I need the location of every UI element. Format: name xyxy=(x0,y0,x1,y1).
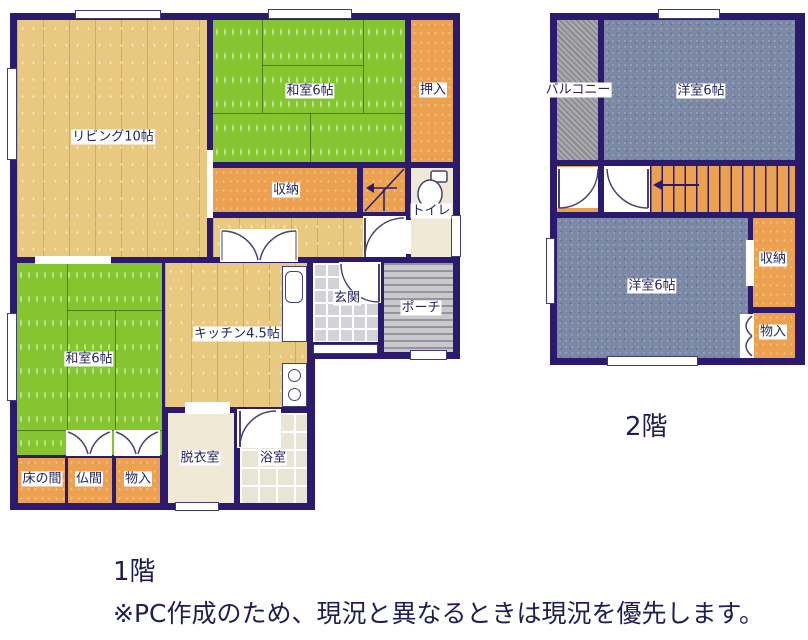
fusuma-door xyxy=(114,430,160,456)
window xyxy=(75,10,161,19)
stairs-2f-arrow xyxy=(651,177,703,193)
door-opening xyxy=(746,240,754,286)
plan-floor1-cutout xyxy=(315,359,460,510)
disclaimer-note: ※PC作成のため、現況と異なるときは現況を優先します。 xyxy=(113,594,764,630)
door-arc-hall-genkan xyxy=(363,216,406,258)
double-door-hall-kitchen xyxy=(220,229,298,262)
tatami-line xyxy=(67,263,68,430)
window xyxy=(658,9,720,19)
tatami-line xyxy=(310,113,311,162)
window xyxy=(7,68,17,160)
label-butsuma: 仏間 xyxy=(75,472,103,487)
door-arc-landing-right xyxy=(604,167,650,209)
kitchen-sink xyxy=(285,271,303,303)
tatami-line xyxy=(262,65,363,66)
label-kitchen: キッチン4.5帖 xyxy=(193,327,281,342)
label-youshitsu-top: 洋室6帖 xyxy=(676,84,725,99)
tatami-line xyxy=(213,113,405,114)
stove-burner xyxy=(288,369,301,382)
tatami-line xyxy=(363,20,364,113)
door-arc-bathroom xyxy=(237,409,281,449)
fusuma-door xyxy=(66,430,112,456)
tatami-line xyxy=(115,310,116,430)
door-opening xyxy=(35,256,111,264)
window xyxy=(607,356,698,366)
window xyxy=(410,350,447,360)
label-shuunou-2f: 収納 xyxy=(759,252,787,267)
label-washitsu-bottom: 和室6帖 xyxy=(64,352,113,367)
label-youshitsu-bottom: 洋室6帖 xyxy=(627,279,676,294)
window xyxy=(7,313,17,401)
label-balcony: バルコニー xyxy=(545,83,612,98)
label-genkan: 玄関 xyxy=(333,291,361,306)
door-opening xyxy=(207,150,213,218)
door-opening xyxy=(185,402,230,414)
closet-door-2f xyxy=(740,314,754,358)
label-oshiire: 押入 xyxy=(419,83,447,98)
label-datsuiishitsu: 脱衣室 xyxy=(179,451,220,466)
stove-burner xyxy=(288,388,301,401)
label-yokushitsu: 浴室 xyxy=(259,451,287,466)
label-tokonoma: 床の間 xyxy=(21,472,62,487)
floorplan-canvas: リビング10帖 和室6帖 押入 収納 トイレ 玄関 ポーチ キッチン4.5帖 和… xyxy=(0,0,808,640)
label-living: リビング10帖 xyxy=(71,130,155,145)
stairs-1f-symbol xyxy=(363,167,406,213)
label-toilet: トイレ xyxy=(410,204,451,219)
door-arc-landing-left xyxy=(557,167,599,209)
tatami-line xyxy=(262,20,263,113)
floor1-title: 1階 xyxy=(113,551,156,588)
label-shuunou-1f: 収納 xyxy=(272,183,300,198)
window xyxy=(268,9,352,19)
window xyxy=(546,238,555,304)
genkan-step xyxy=(313,344,378,354)
label-monoire-2f: 物入 xyxy=(759,325,787,340)
label-washitsu-top: 和室6帖 xyxy=(285,84,334,99)
window xyxy=(175,502,219,511)
label-porch: ポーチ xyxy=(400,301,441,316)
window xyxy=(451,215,461,257)
floor2-title: 2階 xyxy=(625,406,668,443)
label-monoire-1f: 物入 xyxy=(124,472,152,487)
